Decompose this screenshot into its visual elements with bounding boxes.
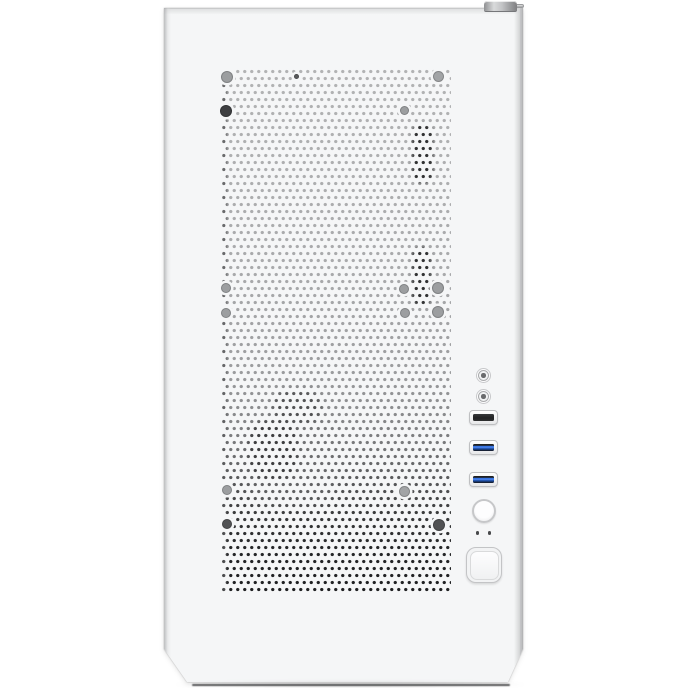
usb3-port-1 [469, 440, 498, 455]
usb2-port [469, 410, 498, 425]
thumbscrew [484, 1, 517, 12]
power-button [466, 547, 502, 583]
pc-case-front [164, 8, 523, 682]
case-shadow-wrapper [164, 8, 523, 682]
usb2-slot [473, 414, 494, 421]
hdd-led-dot [488, 531, 492, 535]
ground-shadow-line [192, 684, 510, 687]
audio-jack-headphone-icon [476, 389, 491, 404]
power-led-dot [476, 531, 480, 535]
reset-button [472, 499, 496, 523]
front-io-panel [164, 8, 523, 682]
product-image [0, 0, 688, 688]
usb3-port-2 [469, 472, 498, 487]
audio-jack-mic-icon [476, 368, 491, 383]
usb3-slot [473, 476, 494, 483]
usb3-slot [473, 444, 494, 451]
